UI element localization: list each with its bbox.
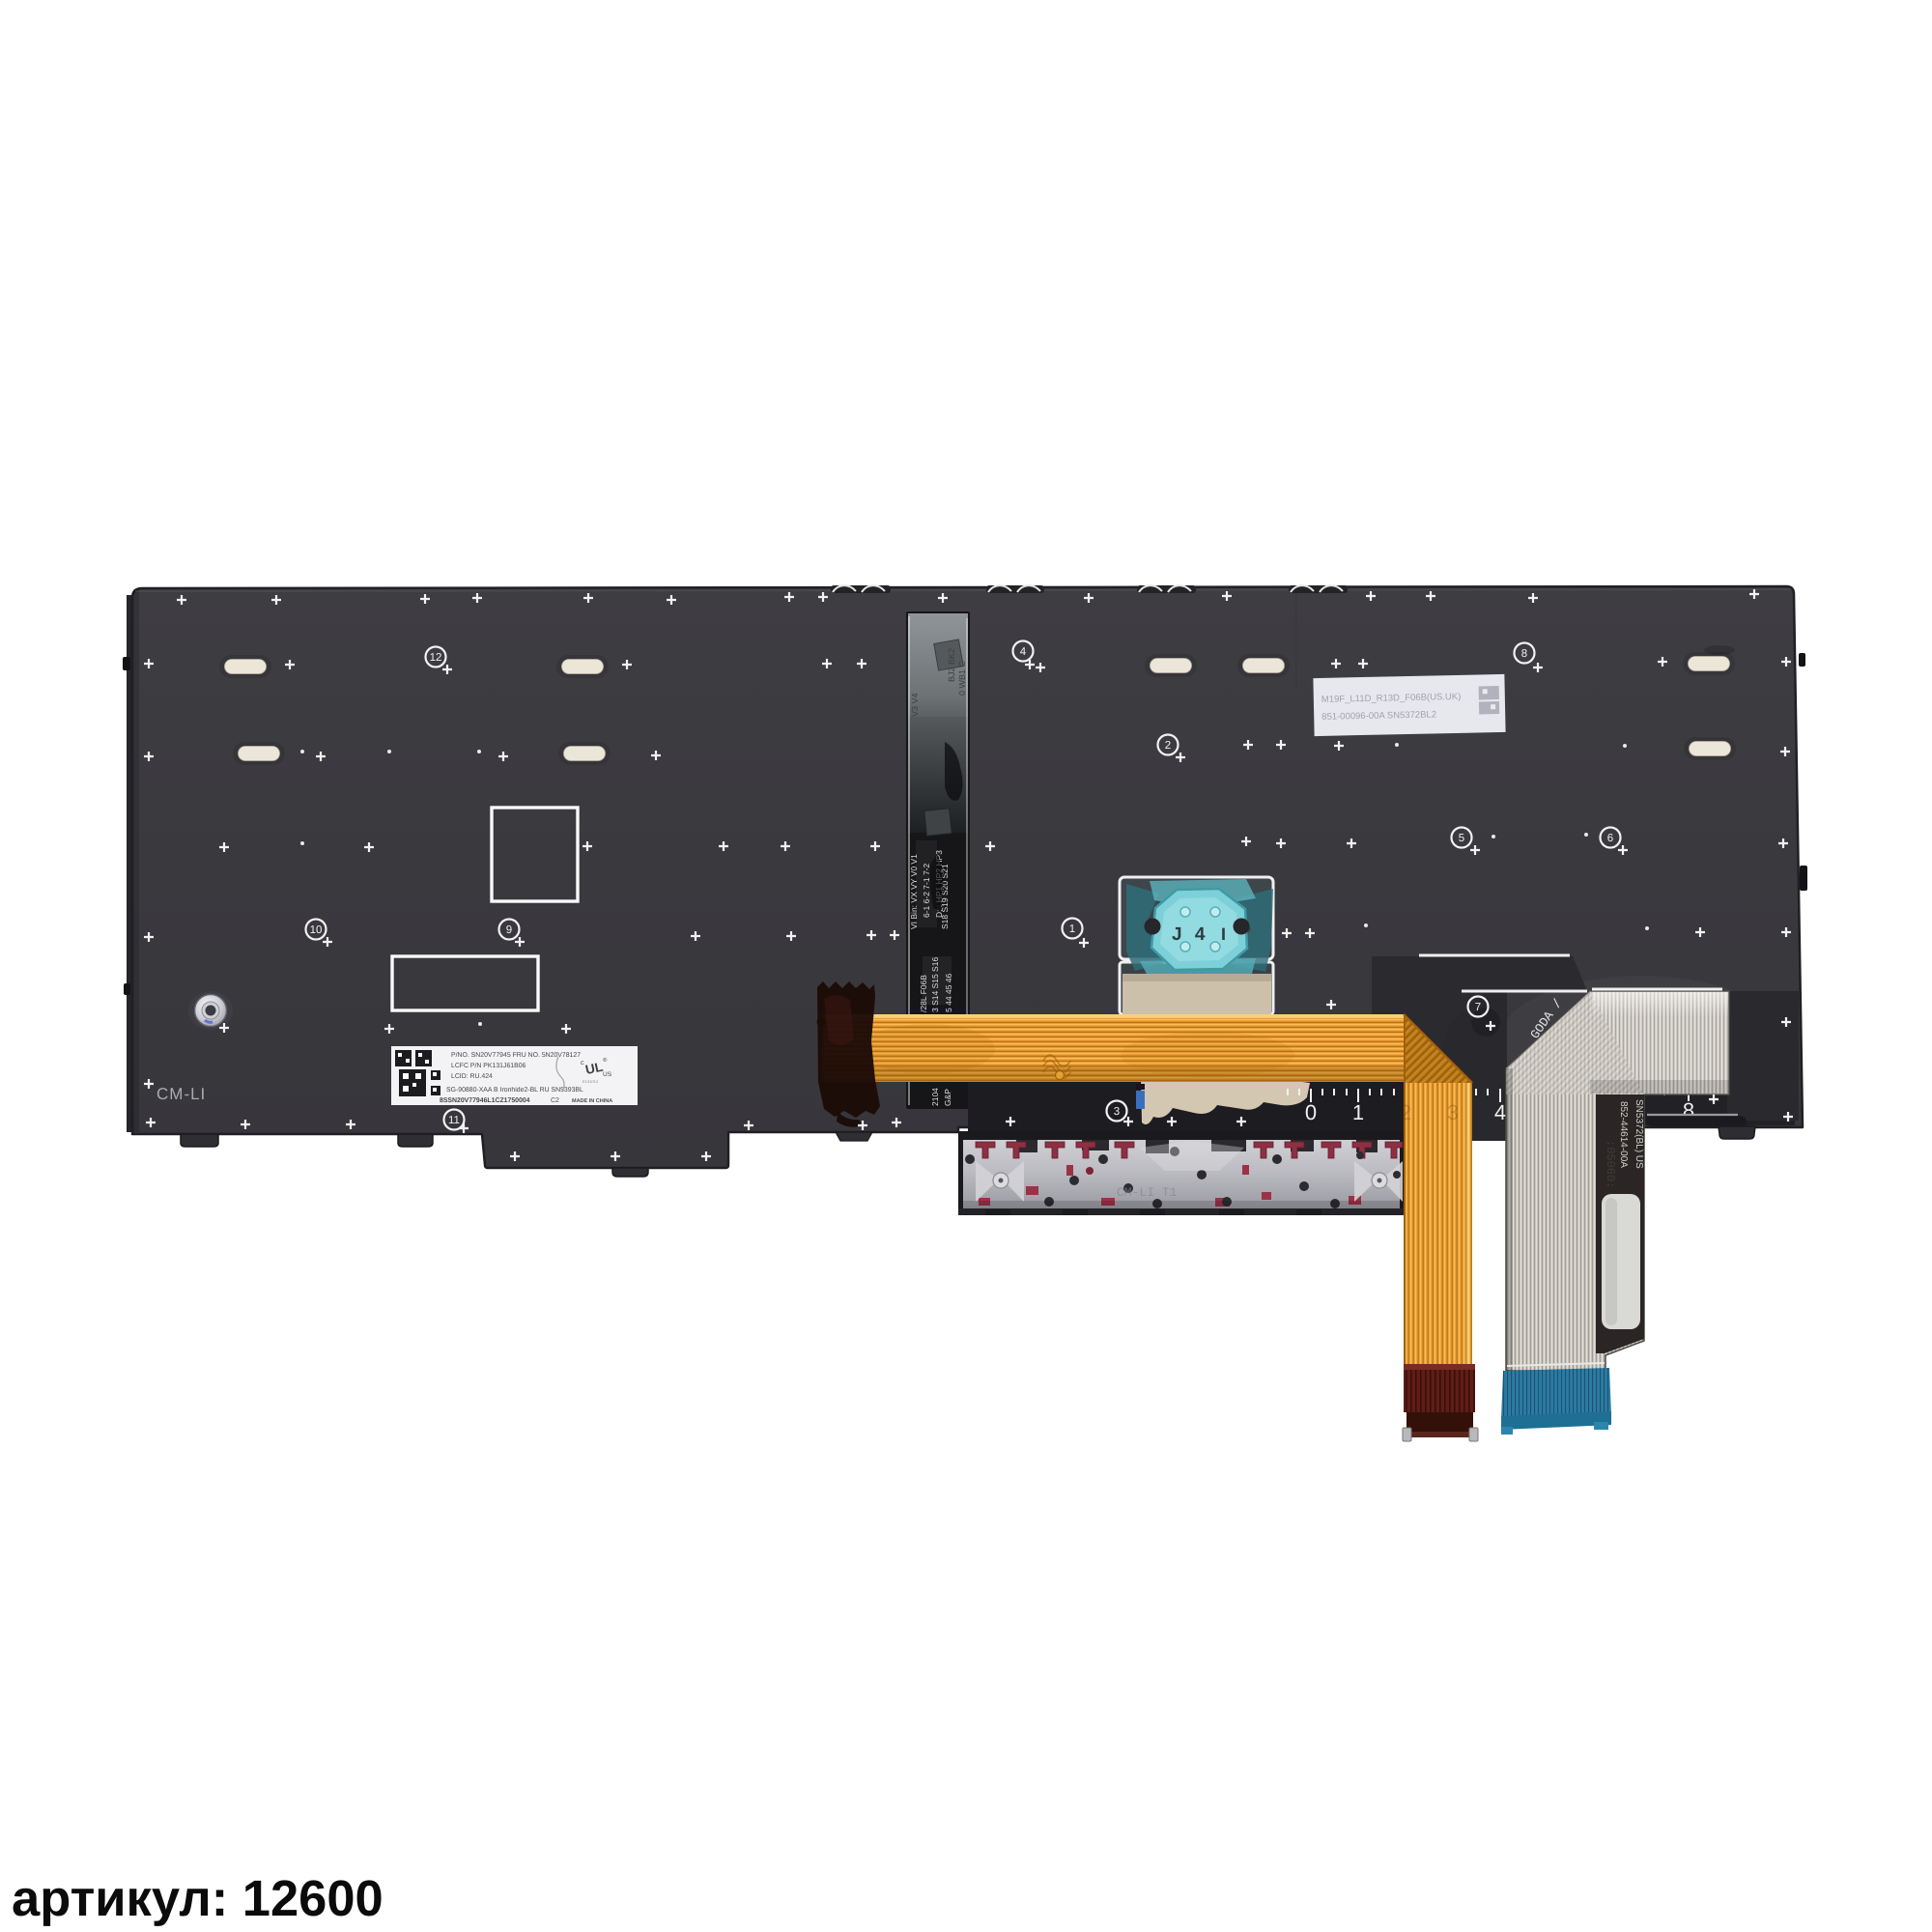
svg-text:11: 11 [448, 1115, 460, 1126]
svg-text:2: 2 [1400, 1100, 1411, 1124]
svg-text:0: 0 [1305, 1100, 1317, 1124]
svg-text:3 S14 S15 S16: 3 S14 S15 S16 [930, 957, 940, 1012]
svg-text:852-44614-00A: 852-44614-00A [1618, 1101, 1629, 1168]
svg-text:0 WB1 C: 0 WB1 C [957, 660, 967, 696]
svg-text:12: 12 [430, 652, 442, 664]
svg-text:6: 6 [1607, 833, 1613, 844]
svg-text:BJ2 BK2: BJ2 BK2 [947, 648, 956, 682]
svg-text:7: 7 [1475, 1002, 1481, 1013]
svg-text:C2: C2 [551, 1097, 559, 1104]
svg-text:LCID: RU.424: LCID: RU.424 [451, 1073, 493, 1080]
svg-text:LCFC P/N PK131J61B06: LCFC P/N PK131J61B06 [451, 1063, 526, 1069]
svg-text::05060:: :05060: [1604, 1140, 1617, 1188]
svg-text:US: US [603, 1071, 612, 1078]
svg-text:®: ® [603, 1057, 608, 1064]
svg-text:3: 3 [1114, 1106, 1120, 1118]
svg-text:E141014: E141014 [582, 1079, 599, 1084]
svg-text:G&P: G&P [943, 1089, 952, 1106]
svg-text:9: 9 [506, 924, 512, 936]
svg-text:1: 1 [1069, 923, 1075, 935]
svg-text:VI Bin: VX VY V0 V1: VI Bin: VX VY V0 V1 [909, 854, 919, 929]
svg-text:1: 1 [1352, 1100, 1364, 1124]
svg-text:10: 10 [310, 924, 323, 936]
svg-text:CM-LI: CM-LI [156, 1085, 206, 1103]
svg-text:8SSN20V77946L1CZ1750004: 8SSN20V77946L1CZ1750004 [440, 1097, 530, 1104]
svg-text:J 4: J 4 [1172, 924, 1208, 945]
svg-text:5: 5 [1459, 833, 1464, 844]
svg-text:CM-LI T1: CM-LI T1 [1117, 1185, 1178, 1200]
svg-text:3: 3 [1447, 1100, 1459, 1124]
svg-text:MADE IN CHINA: MADE IN CHINA [572, 1098, 612, 1104]
svg-text:5 44 45 46: 5 44 45 46 [944, 974, 953, 1012]
svg-text:8: 8 [1521, 648, 1527, 660]
svg-text:P/NO. SN20V77945 FRU NO. 5N2: P/NO. SN20V77945 FRU NO. 5N20V78127 [451, 1052, 581, 1059]
svg-text:4: 4 [1494, 1100, 1506, 1124]
svg-text:I: I [1221, 924, 1226, 944]
svg-text:2: 2 [1165, 740, 1171, 752]
svg-text:/28L F06B: /28L F06B [919, 975, 928, 1012]
svg-text:артикул: 12600: артикул: 12600 [12, 1870, 384, 1927]
svg-text:4: 4 [1020, 646, 1027, 658]
svg-text:SN5372(BL) US: SN5372(BL) US [1634, 1099, 1644, 1169]
svg-text:2104: 2104 [930, 1088, 940, 1106]
svg-text:V3 V4: V3 V4 [910, 693, 920, 717]
